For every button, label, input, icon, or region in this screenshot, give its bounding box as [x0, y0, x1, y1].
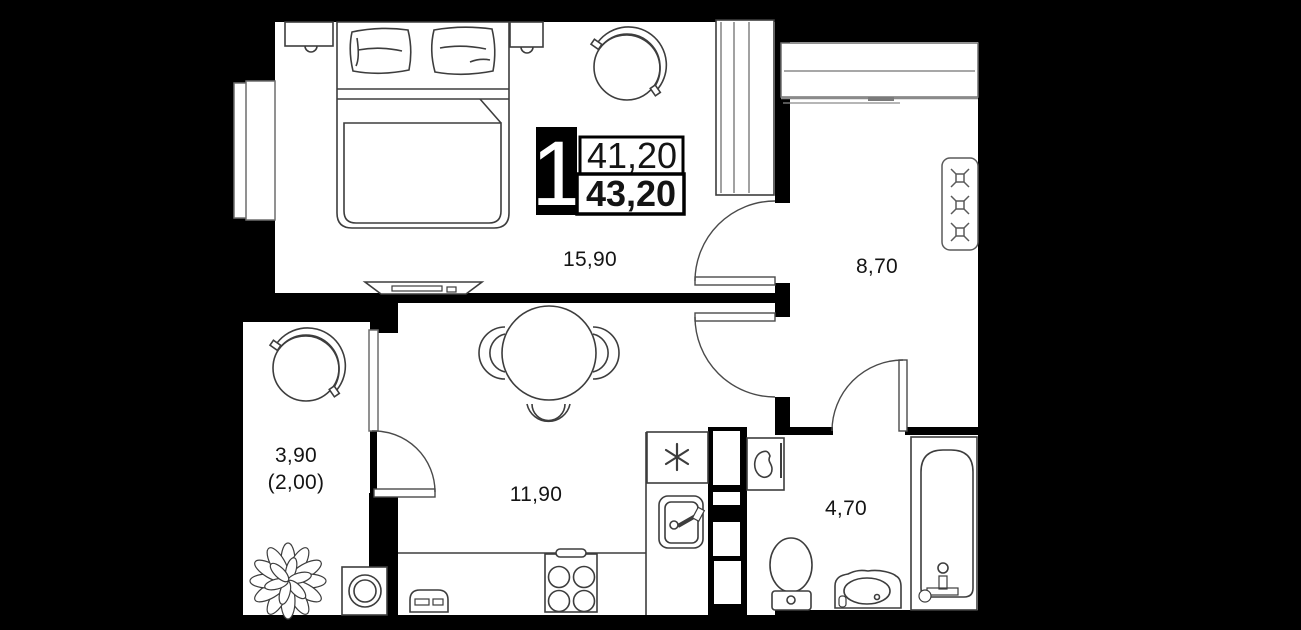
badge-rooms-count: 1	[531, 123, 582, 225]
balcony-area-label: 3,90	[275, 444, 317, 467]
badge-total-area: 43,20	[586, 173, 676, 214]
bedroom-window-icon	[246, 81, 275, 220]
door-leaf	[695, 277, 775, 285]
double-bed	[337, 22, 509, 228]
shaft-duct	[713, 431, 740, 485]
dining-table	[502, 306, 596, 400]
door-leaf	[695, 313, 775, 321]
countertop-appliance	[410, 590, 448, 612]
bedroom-door-opening	[775, 203, 790, 283]
stove	[545, 549, 597, 612]
bedroom-area-label: 15,90	[563, 248, 617, 271]
wardrobe	[716, 20, 774, 195]
balcony-window-icon	[369, 330, 378, 431]
bathroom-door-opening	[833, 427, 905, 435]
living-door-opening	[775, 317, 790, 397]
shaft-duct	[713, 522, 740, 556]
bathroom-sink	[835, 570, 901, 608]
fridge	[647, 432, 708, 483]
shaft-duct	[714, 561, 741, 604]
hallway-area-label: 8,70	[856, 255, 898, 278]
floor-plan-canvas: 1 41,20 43,20	[0, 0, 1301, 630]
pillow-right	[432, 27, 495, 74]
kitchen-sink	[659, 496, 704, 548]
badge-living-area: 41,20	[587, 135, 677, 176]
pillow-left	[350, 28, 411, 73]
toilet	[770, 538, 812, 610]
hall-closet	[781, 43, 978, 103]
bathroom-area-label: 4,70	[825, 497, 867, 520]
bathtub	[911, 437, 977, 610]
door-leaf	[899, 360, 907, 431]
unit-badge: 1 41,20 43,20	[531, 123, 684, 225]
kitchen-living-area-label: 11,90	[510, 483, 563, 506]
door-leaf	[374, 489, 435, 497]
wall-above-balcony-window	[373, 300, 398, 333]
coat-rack	[942, 158, 978, 250]
balcony-reduced-area-label: (2,00)	[268, 471, 325, 494]
shaft-duct	[713, 492, 740, 505]
tv	[365, 282, 482, 294]
floor-plan: 1 41,20 43,20	[0, 0, 1301, 630]
washing-machine	[342, 567, 387, 615]
water-heater	[747, 438, 784, 490]
